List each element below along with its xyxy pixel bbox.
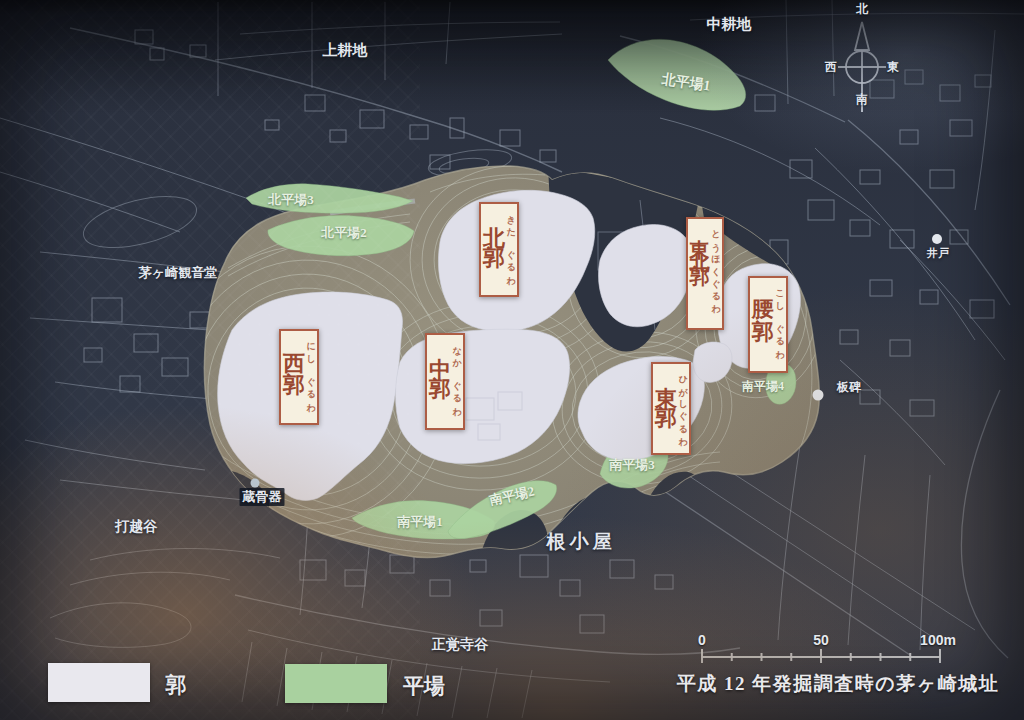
enclosure-kanji: 中郭 [429,340,451,423]
place-kannondo: 茅ヶ崎観音堂 [139,264,217,282]
map-caption: 平成 12 年発掘調査時の茅ヶ崎城址 [677,671,999,697]
compass-west: 西 [825,59,837,76]
enclosure-furigana: とうほくぐるわ [711,224,720,323]
legend-hiraba-swatch [285,664,387,703]
itabi-marker [813,390,824,401]
enclosure-furigana: ひがしぐるわ [678,369,687,448]
enclosure-furigana: きた ぐるわ [506,209,515,290]
enclosure-label-higashi: 東郭 ひがしぐるわ [651,362,691,455]
place-uchikoshidani: 打越谷 [115,518,157,536]
enclosure-furigana: なか ぐるわ [452,340,461,423]
flat-label-minami4: 南平場4 [742,378,784,395]
urn-label: 蔵骨器 [240,488,285,506]
legend-hiraba-label: 平場 [403,672,445,700]
well-label: 井戸 [927,246,949,261]
enclosure-furigana: にし ぐるわ [306,336,315,418]
compass-south: 南 [856,91,868,108]
scale-fifty: 50 [813,632,829,648]
place-nakakochi: 中耕地 [707,15,752,34]
flat-label-kita2: 北平場2 [321,224,367,242]
enclosure-label-naka: 中郭 なか ぐるわ [425,333,465,430]
compass-north: 北 [856,1,868,18]
flat-label-kita3: 北平場3 [268,191,314,209]
urn-marker [251,479,260,488]
enclosure-kanji: 腰郭 [752,283,774,366]
itabi-label: 板碑 [837,379,861,396]
compass-east: 東 [887,59,899,76]
enclosure-kanji: 北郭 [483,209,505,290]
enclosure-label-koshi: 腰郭 こし ぐるわ [748,276,788,373]
enclosure-label-kita: 北郭 きた ぐるわ [479,202,519,297]
map-artwork [0,0,1024,720]
enclosure-label-tohoku: 東北郭 とうほくぐるわ [686,217,724,330]
enclosure-kanji: 西郭 [283,336,305,418]
enclosure-label-nishi: 西郭 にし ぐるわ [279,329,319,425]
place-negoya: 根小屋 [547,529,616,555]
flat-label-minami3: 南平場3 [609,456,655,474]
enclosure-kanji: 東北郭 [690,224,710,323]
well-marker [932,234,942,244]
legend-kuruwa-swatch [48,663,150,702]
flat-label-minami1: 南平場1 [397,513,443,531]
place-shokakujidani: 正覚寺谷 [432,636,488,654]
scale-hundred: 100m [920,632,956,648]
enclosure-furigana: こし ぐるわ [775,283,784,366]
legend-kuruwa-label: 郭 [166,671,187,699]
enclosure-kanji: 東郭 [655,369,677,448]
scale-zero: 0 [698,632,706,648]
signboard-map: 上耕地 中耕地 茅ヶ崎観音堂 打越谷 根小屋 正覚寺谷 井戸 板碑 蔵骨器 北平… [0,0,1024,720]
place-kamikochi: 上耕地 [323,41,368,60]
